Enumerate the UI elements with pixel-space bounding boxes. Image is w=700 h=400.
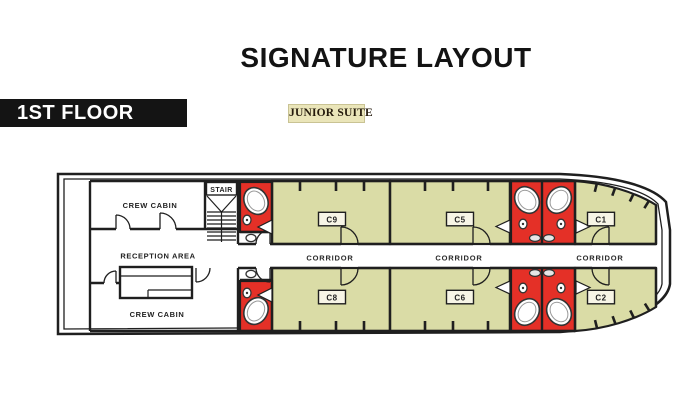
cabin-c2-label: C2 xyxy=(595,293,606,302)
cabin-c5-label: C5 xyxy=(454,215,465,224)
reception-desk xyxy=(120,267,192,298)
cabin-c6-label: C6 xyxy=(454,293,465,302)
cabin-c8-label: C8 xyxy=(326,293,337,302)
corridor-label-left: CORRIDOR xyxy=(306,254,353,263)
corridor-label-mid: CORRIDOR xyxy=(435,254,482,263)
corridor-label-right: CORRIDOR xyxy=(576,254,623,263)
floor-plan: STAIR xyxy=(0,0,700,400)
crew-cabin-bottom-label: CREW CABIN xyxy=(130,310,185,319)
cabin-c9-label: C9 xyxy=(326,215,337,224)
stair-label: STAIR xyxy=(210,187,232,194)
reception-area-label: RECEPTION AREA xyxy=(120,252,195,261)
crew-cabin-top-label: CREW CABIN xyxy=(123,201,178,210)
cabin-c1-label: C1 xyxy=(595,215,606,224)
